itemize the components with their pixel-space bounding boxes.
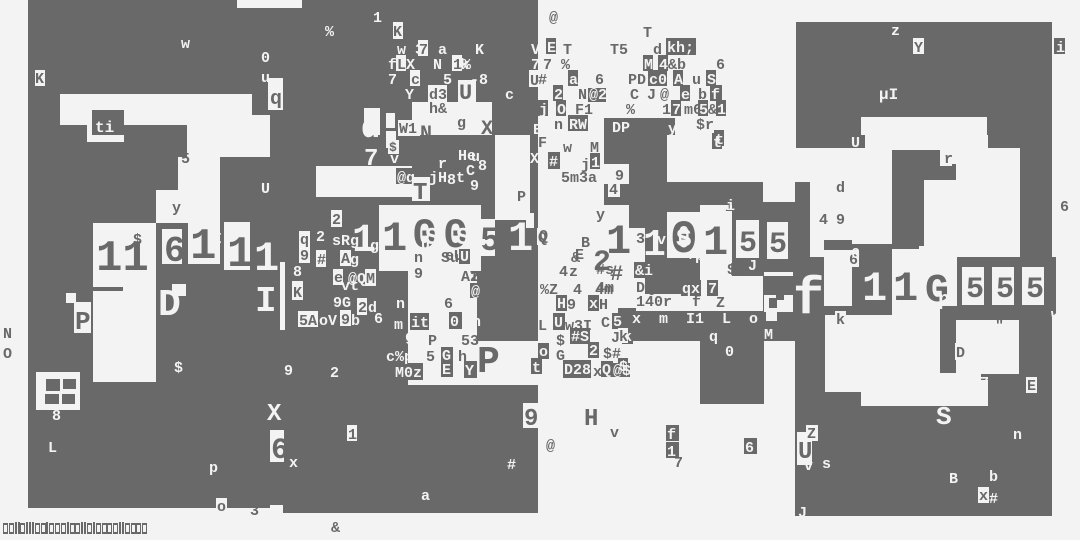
- svg-text:2: 2: [316, 229, 325, 246]
- svg-text:L: L: [538, 318, 547, 335]
- svg-text:@: @: [549, 10, 558, 27]
- svg-text:&: &: [331, 520, 340, 537]
- svg-text:a: a: [569, 72, 578, 89]
- svg-text:5: 5: [426, 349, 435, 366]
- svg-text:g: g: [457, 115, 466, 132]
- svg-text:6: 6: [716, 57, 725, 74]
- svg-text:2: 2: [330, 365, 339, 382]
- svg-text:kh;: kh;: [667, 40, 694, 57]
- svg-text:@: @: [546, 438, 555, 455]
- svg-text:E: E: [575, 247, 584, 264]
- svg-text:d: d: [361, 110, 380, 147]
- svg-text:D28: D28: [564, 362, 591, 379]
- svg-text:N: N: [3, 326, 12, 343]
- svg-text:P: P: [477, 341, 500, 384]
- svg-text:jH: jH: [429, 170, 447, 187]
- svg-text:Y: Y: [465, 363, 474, 380]
- svg-text:1: 1: [703, 219, 728, 267]
- svg-text:k: k: [836, 312, 845, 329]
- svg-text:5: 5: [739, 227, 757, 261]
- svg-text:7: 7: [388, 72, 397, 89]
- svg-text:1: 1: [373, 10, 382, 27]
- svg-text:q: q: [709, 329, 718, 346]
- svg-text:6: 6: [851, 246, 860, 263]
- svg-text:7: 7: [672, 102, 681, 119]
- svg-text:6: 6: [374, 311, 383, 328]
- svg-text:4: 4: [609, 182, 618, 199]
- svg-text:u: u: [261, 70, 270, 87]
- svg-text:M: M: [764, 327, 773, 344]
- svg-text:y: y: [668, 121, 677, 138]
- svg-text:5m3a: 5m3a: [561, 170, 597, 187]
- svg-text:k: k: [619, 329, 628, 346]
- svg-text:t: t: [713, 135, 722, 152]
- svg-text:x: x: [593, 364, 602, 381]
- svg-text:9G: 9G: [333, 295, 351, 312]
- svg-text:D: D: [158, 284, 181, 327]
- svg-text:o: o: [217, 499, 226, 516]
- svg-text:6: 6: [271, 434, 289, 468]
- svg-text:K: K: [475, 42, 484, 59]
- svg-text:+p: +p: [686, 248, 704, 265]
- svg-text:@: @: [471, 284, 480, 301]
- svg-text:6: 6: [745, 440, 754, 457]
- svg-text:p: p: [938, 289, 950, 312]
- svg-text:d: d: [836, 180, 845, 197]
- svg-text:x: x: [979, 488, 988, 505]
- svg-text:c: c: [68, 291, 77, 308]
- svg-text:N: N: [420, 123, 432, 146]
- svg-text:9: 9: [300, 248, 309, 265]
- svg-text:P: P: [75, 307, 91, 337]
- svg-text:s: s: [822, 456, 831, 473]
- svg-text:1: 1: [508, 215, 533, 263]
- svg-text:E: E: [547, 40, 556, 57]
- svg-text:o: o: [539, 344, 548, 361]
- svg-text:1: 1: [254, 235, 279, 283]
- svg-text:1: 1: [348, 427, 357, 444]
- svg-text:K: K: [393, 24, 402, 41]
- svg-text:F: F: [538, 135, 547, 152]
- svg-text:v: v: [804, 458, 813, 475]
- svg-text:8: 8: [293, 264, 302, 281]
- svg-text:8: 8: [478, 158, 487, 175]
- svg-text:8: 8: [52, 408, 61, 425]
- svg-text:Q: Q: [602, 362, 611, 379]
- svg-text:L: L: [397, 57, 406, 74]
- svg-text:I: I: [213, 231, 222, 248]
- svg-text:y: y: [596, 207, 605, 224]
- svg-text:v: v: [610, 425, 619, 442]
- svg-text:Z: Z: [807, 426, 816, 443]
- svg-text:t: t: [456, 170, 465, 187]
- svg-text:K: K: [35, 71, 44, 88]
- svg-text:1: 1: [862, 265, 887, 313]
- svg-text:O: O: [3, 346, 12, 363]
- svg-text:x: x: [289, 455, 298, 472]
- svg-text:9: 9: [284, 363, 293, 380]
- svg-text:0: 0: [450, 314, 459, 331]
- svg-text:Y: Y: [914, 40, 923, 57]
- svg-text:2: 2: [332, 212, 341, 229]
- svg-text:z: z: [891, 23, 900, 40]
- svg-text:c%p: c%p: [386, 349, 413, 366]
- svg-text:#: #: [989, 491, 998, 508]
- svg-text:7: 7: [674, 455, 683, 472]
- svg-text:6: 6: [164, 231, 186, 272]
- svg-text:m: m: [394, 317, 403, 334]
- svg-text:h&: h&: [429, 101, 447, 118]
- svg-text:1: 1: [893, 265, 918, 313]
- svg-text:4: 4: [819, 212, 828, 229]
- svg-text:X: X: [267, 401, 282, 428]
- svg-text:f: f: [793, 270, 824, 329]
- svg-text:x: x: [589, 296, 598, 313]
- svg-text:#: #: [507, 457, 516, 474]
- svg-text:H: H: [584, 406, 598, 433]
- svg-text:$: $: [389, 140, 397, 155]
- svg-text:X: X: [481, 118, 493, 141]
- svg-text:7: 7: [364, 146, 378, 173]
- svg-text:g: g: [405, 329, 414, 346]
- svg-text:J: J: [647, 87, 656, 104]
- svg-text:q: q: [300, 232, 309, 249]
- svg-text:xn: xn: [463, 314, 481, 331]
- svg-text:Q: Q: [539, 228, 548, 245]
- svg-text:9: 9: [341, 312, 350, 329]
- svg-text:5: 5: [1026, 273, 1044, 307]
- svg-text:9: 9: [524, 406, 538, 433]
- svg-text:w: w: [181, 36, 190, 53]
- svg-text:D: D: [956, 345, 965, 362]
- svg-text:P: P: [395, 269, 404, 286]
- svg-text:i: i: [1056, 40, 1065, 57]
- svg-text:2: 2: [593, 246, 611, 280]
- svg-text:9: 9: [470, 178, 479, 195]
- svg-text:C: C: [601, 315, 610, 332]
- svg-text:n M: n M: [396, 296, 432, 313]
- svg-text:F: F: [477, 237, 486, 254]
- svg-text:S: S: [936, 402, 952, 432]
- svg-text:6: 6: [444, 296, 453, 313]
- svg-text:K: K: [293, 285, 302, 302]
- svg-text:$: $: [133, 232, 142, 249]
- svg-text:B: B: [949, 471, 958, 488]
- svg-text:I: I: [255, 281, 277, 322]
- svg-text:f: f: [692, 294, 701, 311]
- svg-text:8: 8: [447, 172, 456, 189]
- svg-text:5: 5: [966, 273, 984, 307]
- svg-text:f: f: [667, 427, 676, 444]
- svg-text:µI: µI: [879, 86, 898, 104]
- svg-text:$r: $r: [696, 117, 714, 134]
- svg-text:2: 2: [589, 343, 598, 360]
- svg-text:1: 1: [662, 102, 671, 119]
- svg-text:H: H: [599, 297, 608, 314]
- svg-text:n: n: [1013, 427, 1022, 444]
- svg-text:T: T: [413, 180, 427, 207]
- svg-text:U: U: [261, 181, 270, 198]
- svg-text:5: 5: [769, 228, 787, 262]
- svg-text:b: b: [351, 313, 360, 330]
- svg-text:W: W: [1051, 309, 1060, 326]
- svg-text:7: 7: [980, 375, 989, 392]
- svg-text:RW: RW: [569, 117, 587, 134]
- svg-text:E: E: [442, 362, 451, 379]
- svg-text:#S: #S: [571, 329, 589, 346]
- svg-text:J: J: [798, 505, 807, 522]
- svg-text:q: q: [270, 88, 282, 111]
- svg-text:P: P: [428, 333, 437, 350]
- svg-text:x m I1 L o: x m I1 L o: [632, 311, 758, 328]
- svg-text:#: #: [549, 154, 558, 171]
- svg-text:a: a: [421, 488, 430, 505]
- svg-text:E: E: [1027, 378, 1036, 395]
- svg-text:U: U: [459, 81, 472, 106]
- svg-text:%: %: [626, 102, 636, 119]
- svg-text:oV: oV: [319, 313, 337, 330]
- svg-text:W1: W1: [399, 121, 417, 138]
- svg-text:j: j: [539, 102, 548, 119]
- svg-text:5: 5: [996, 273, 1014, 307]
- svg-text:9: 9: [836, 212, 845, 229]
- svg-text:6: 6: [1060, 199, 1069, 216]
- svg-text:Z: Z: [716, 295, 725, 312]
- svg-text:g: g: [350, 252, 359, 269]
- svg-text:P: P: [517, 189, 526, 206]
- svg-text:DP: DP: [612, 120, 630, 137]
- svg-text:g: g: [370, 238, 379, 255]
- svg-text:n: n: [554, 117, 563, 134]
- svg-text:U: U: [554, 315, 563, 332]
- svg-text:0: 0: [261, 50, 270, 67]
- svg-text:M: M: [366, 271, 375, 288]
- svg-text:vt: vt: [341, 278, 359, 295]
- svg-text:1: 1: [643, 224, 666, 267]
- svg-text:1: 1: [227, 230, 253, 280]
- svg-text:U: U: [851, 135, 860, 152]
- svg-text:A: A: [764, 345, 773, 362]
- svg-text:#: #: [317, 252, 326, 269]
- svg-text:T: T: [643, 25, 652, 42]
- svg-text:3: 3: [250, 503, 259, 520]
- svg-text:ti: ti: [95, 119, 114, 137]
- svg-text:%Z: %Z: [540, 282, 558, 299]
- svg-text:140r: 140r: [636, 294, 672, 311]
- svg-text:b: b: [989, 469, 998, 486]
- svg-text:t: t: [532, 360, 541, 377]
- svg-text:L: L: [48, 440, 57, 457]
- svg-text:U: U: [460, 249, 469, 266]
- svg-text:z: z: [569, 264, 578, 281]
- svg-text:5: 5: [181, 151, 190, 168]
- svg-text:$: $: [174, 360, 183, 377]
- svg-text:5A: 5A: [299, 313, 317, 330]
- svg-text:0: 0: [725, 344, 734, 361]
- svg-text:9: 9: [414, 266, 423, 283]
- svg-text:M0z: M0z: [395, 365, 422, 382]
- svg-text:1: 1: [382, 215, 407, 263]
- svg-text:&i: &i: [635, 263, 653, 280]
- svg-text:#: #: [538, 72, 547, 89]
- svg-text:": ": [995, 318, 1004, 335]
- svg-text:%: %: [325, 24, 335, 41]
- svg-text:r: r: [944, 151, 953, 168]
- svg-text:p: p: [209, 460, 218, 477]
- svg-text:Y: Y: [405, 87, 414, 104]
- svg-text:4: 4: [559, 264, 568, 281]
- svg-text:c: c: [505, 87, 514, 104]
- svg-text:$: $: [619, 359, 628, 376]
- svg-text:H: H: [557, 296, 566, 313]
- svg-text:X: X: [530, 151, 539, 168]
- svg-text:T5: T5: [610, 42, 628, 59]
- svg-text:1: 1: [717, 102, 726, 119]
- svg-text:A: A: [341, 251, 350, 268]
- svg-text:i: i: [726, 198, 735, 215]
- svg-text:7 %: 7 %: [543, 57, 571, 74]
- svg-text:y: y: [172, 200, 181, 217]
- svg-text:J: J: [748, 258, 757, 275]
- svg-text:9: 9: [567, 297, 576, 314]
